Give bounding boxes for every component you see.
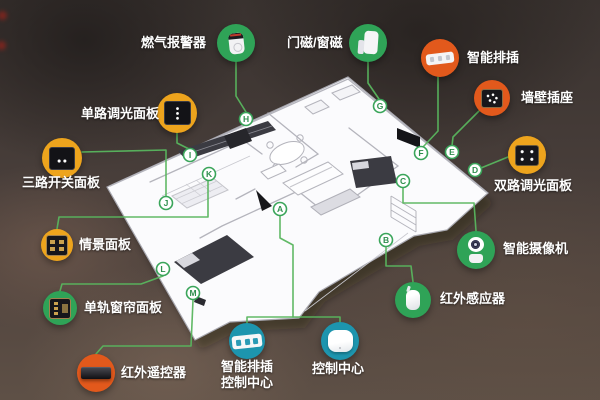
svg-text:A: A [277, 204, 283, 214]
badge-a: A [274, 203, 287, 216]
svg-text:I: I [189, 150, 191, 160]
label-curtain-panel: 单轨窗帘面板 [84, 300, 162, 316]
device-smart-power-strip [421, 39, 459, 77]
badge-g: G [374, 100, 387, 113]
curtain-panel-icon [49, 298, 71, 319]
svg-text:M: M [189, 288, 196, 298]
label-control-center: 控制中心 [312, 361, 364, 377]
label-smart-camera: 智能摄像机 [503, 241, 568, 257]
label-line-2: 控制中心 [221, 375, 273, 391]
dimmer-panel-icon [164, 101, 191, 125]
device-door-window-magnet [349, 24, 387, 62]
device-curtain-panel [43, 291, 77, 325]
switch-panel-icon [49, 147, 75, 170]
label-ir-remote: 红外遥控器 [121, 365, 186, 381]
bed-right [350, 156, 397, 188]
camera-icon [466, 237, 486, 263]
badge-k: K [203, 168, 216, 181]
svg-text:F: F [418, 148, 423, 158]
label-three-gang-switch-panel: 三路开关面板 [22, 175, 100, 191]
gas-alarm-icon [227, 32, 244, 54]
badge-d: D [469, 164, 482, 177]
remote-box-icon [81, 367, 111, 379]
badge-m: M [187, 287, 200, 300]
power-strip-icon [425, 51, 454, 65]
badge-b: B [380, 234, 393, 247]
motion-sensor-icon [406, 290, 420, 310]
svg-text:K: K [206, 169, 213, 179]
label-wall-socket: 墙壁插座 [521, 90, 573, 106]
device-single-dimmer-panel [157, 93, 197, 133]
device-smart-strip-control-center [229, 323, 265, 359]
badge-l: L [157, 263, 170, 276]
door-magnet-icon [356, 31, 380, 55]
device-wall-socket [474, 80, 510, 116]
svg-text:L: L [160, 264, 165, 274]
svg-text:C: C [400, 176, 406, 186]
svg-text:D: D [472, 165, 478, 175]
badge-c: C [397, 175, 410, 188]
svg-text:J: J [164, 198, 169, 208]
wall-socket-icon [481, 89, 503, 108]
device-ir-remote [77, 354, 115, 392]
badge-e: E [446, 146, 459, 159]
label-single-dimmer-panel: 单路调光面板 [81, 106, 159, 122]
strip-controller-icon [231, 333, 262, 349]
dimmer-panel-icon [515, 145, 539, 166]
label-dual-dimmer-panel: 双路调光面板 [494, 178, 572, 194]
label-line-1: 智能排插 [221, 359, 273, 375]
badge-h: H [240, 113, 253, 126]
label-smart-strip-control-center: 智能排插 控制中心 [221, 359, 273, 391]
badge-f: F [415, 147, 428, 160]
label-scene-panel: 情景面板 [79, 237, 131, 253]
scene-panel-icon [46, 235, 68, 256]
device-control-center [321, 322, 359, 360]
svg-text:E: E [449, 147, 455, 157]
device-scene-panel [41, 229, 73, 261]
label-gas-alarm: 燃气报警器 [141, 35, 206, 51]
device-smart-camera [457, 231, 495, 269]
hub-icon [328, 330, 353, 352]
svg-text:G: G [377, 101, 384, 111]
svg-text:B: B [383, 235, 389, 245]
badge-i: I [184, 149, 197, 162]
smart-home-diagram: A B C D E F G H I J K L M [0, 0, 600, 400]
label-ir-sensor: 红外感应器 [440, 291, 505, 307]
badge-j: J [160, 197, 173, 210]
device-dual-dimmer-panel [508, 136, 546, 174]
svg-text:H: H [243, 114, 249, 124]
device-ir-sensor [395, 282, 431, 318]
device-three-gang-switch-panel [42, 138, 82, 178]
label-door-window-magnet: 门磁/窗磁 [287, 35, 343, 51]
device-gas-alarm [217, 24, 255, 62]
label-smart-power-strip: 智能排插 [467, 50, 519, 66]
